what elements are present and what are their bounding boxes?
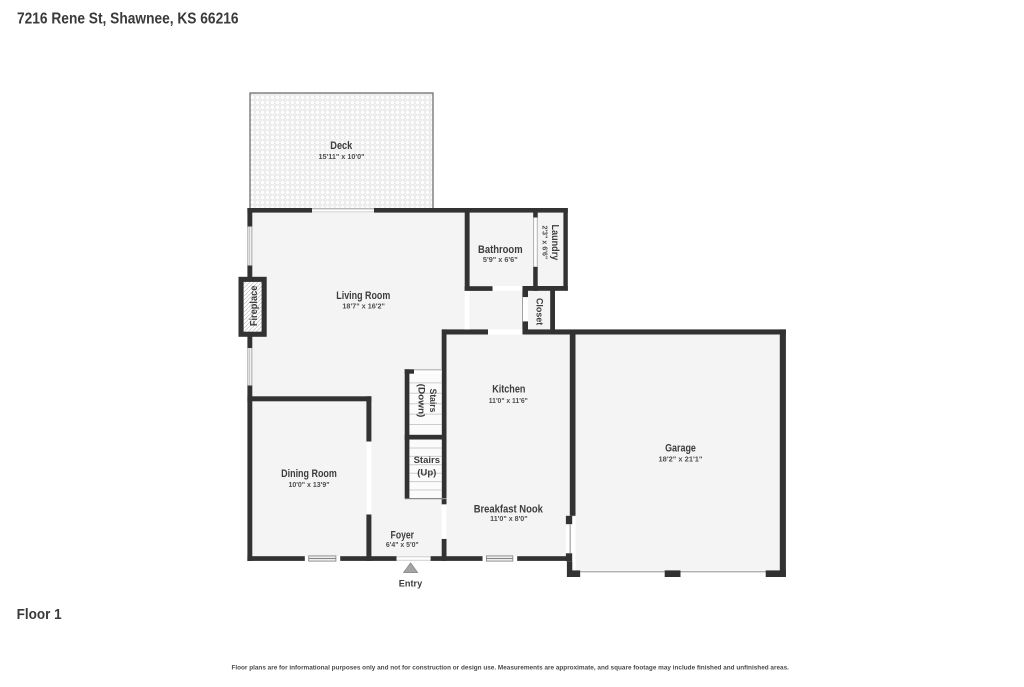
svg-text:Fireplace: Fireplace (249, 285, 260, 326)
svg-text:15'11" x 10'0": 15'11" x 10'0" (318, 152, 364, 161)
svg-text:11'0" x 11'6": 11'0" x 11'6" (489, 396, 528, 405)
svg-text:Garage: Garage (665, 443, 696, 455)
svg-text:6'4" x 5'0": 6'4" x 5'0" (386, 540, 419, 549)
svg-text:18'2" x 21'1": 18'2" x 21'1" (659, 454, 703, 463)
svg-text:Entry: Entry (399, 578, 423, 589)
svg-text:Stairs: Stairs (414, 455, 440, 466)
svg-text:Floor plans are for informatio: Floor plans are for informational purpos… (231, 664, 789, 671)
svg-text:(Up): (Up) (417, 467, 436, 478)
svg-text:5'9" x 6'6": 5'9" x 6'6" (483, 255, 518, 264)
svg-text:2'3" x 6'6": 2'3" x 6'6" (541, 226, 550, 260)
svg-text:11'0" x 8'0": 11'0" x 8'0" (490, 514, 528, 523)
svg-text:(Down): (Down) (416, 384, 427, 418)
svg-text:18'7" x 16'2": 18'7" x 16'2" (342, 301, 385, 310)
svg-text:10'0" x 13'9": 10'0" x 13'9" (288, 480, 329, 489)
svg-text:Dining Room: Dining Room (281, 468, 337, 480)
svg-text:Living Room: Living Room (336, 290, 390, 302)
svg-text:Deck: Deck (330, 140, 352, 152)
svg-text:7216 Rene St, Shawnee, KS 6621: 7216 Rene St, Shawnee, KS 66216 (17, 10, 239, 27)
svg-text:Kitchen: Kitchen (492, 384, 525, 396)
svg-text:Closet: Closet (534, 298, 545, 325)
svg-text:Stairs: Stairs (427, 389, 438, 413)
svg-text:Floor 1: Floor 1 (17, 607, 62, 623)
